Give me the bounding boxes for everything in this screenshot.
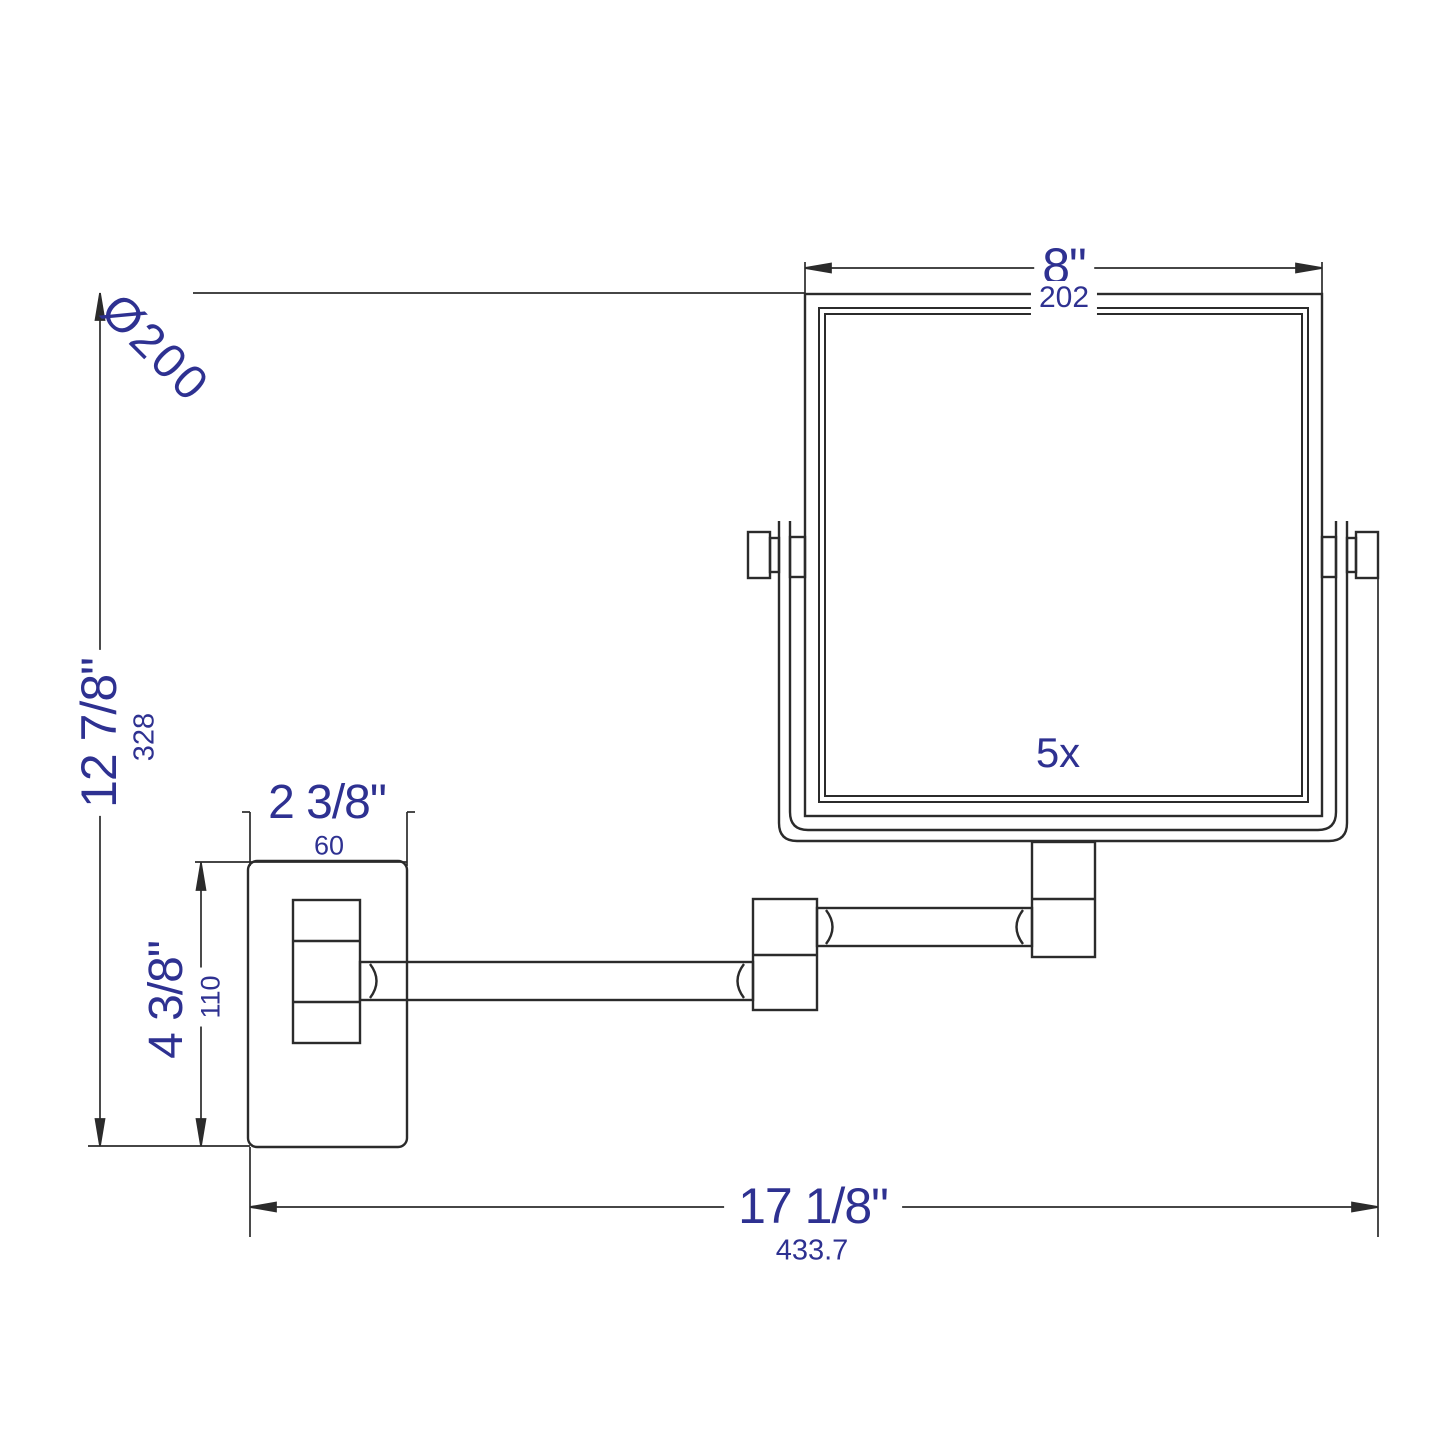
lower-arm-left-joint-arc	[370, 964, 377, 998]
label-mirror-width-mm: 202	[1031, 281, 1097, 315]
yoke-outer-outline	[779, 521, 1347, 841]
dim-8in-arrow-left	[805, 264, 831, 273]
right-pivot-cap	[1356, 532, 1378, 578]
mirror-frame-inner-line1	[819, 308, 1308, 802]
left-pivot-mount	[790, 537, 805, 577]
dim-overall-arrow-right	[1352, 1203, 1378, 1212]
dimension-lines	[88, 262, 1378, 1237]
lower-arm-right-joint-arc	[738, 964, 745, 998]
left-pivot-cap	[748, 532, 770, 578]
dim-8in-arrow-right	[1296, 264, 1322, 273]
right-pivot-shaft	[1347, 538, 1356, 572]
upper-arm	[817, 908, 1032, 946]
label-backplate-width-inches: 2 3/8"	[268, 779, 386, 827]
label-backplate-width-mm: 60	[314, 833, 344, 860]
dim-height-arrow-bottom	[96, 1119, 105, 1146]
upper-arm-right-joint-arc	[1017, 910, 1024, 944]
right-pivot-knob	[1322, 532, 1378, 578]
label-backplate-height-inches: 4 3/8"	[143, 941, 191, 1059]
dim-overall-arrow-left	[250, 1203, 276, 1212]
label-overall-width-mm: 433.7	[768, 1235, 857, 1268]
wall-backplate	[248, 861, 407, 1147]
left-pivot-knob	[748, 532, 805, 578]
backplate-hinge-post	[293, 900, 360, 1043]
technical-drawing-canvas: 8" 202 Ø200 12 7/8" 328 2 3/8" 60 4 3/8"…	[0, 0, 1445, 1445]
label-magnification: 5x	[1036, 732, 1080, 774]
lower-arm	[360, 962, 753, 1000]
dim-plateheight-arrow-bottom	[197, 1119, 206, 1146]
yoke-inner-outline	[790, 521, 1336, 830]
label-overall-height-mm: 328	[131, 713, 160, 761]
mirror-frame-inner-line2	[825, 314, 1302, 796]
right-pivot-mount	[1322, 537, 1336, 577]
upper-arm-left-joint-arc	[826, 910, 833, 944]
dim-plateheight-arrow-top	[197, 863, 206, 890]
label-overall-height-inches: 12 7/8"	[72, 650, 126, 816]
label-backplate-height-mm: 110	[196, 967, 227, 1026]
mirror-line-drawing	[0, 0, 1445, 1445]
label-overall-width-inches: 17 1/8"	[724, 1179, 902, 1233]
left-pivot-shaft	[770, 538, 779, 572]
